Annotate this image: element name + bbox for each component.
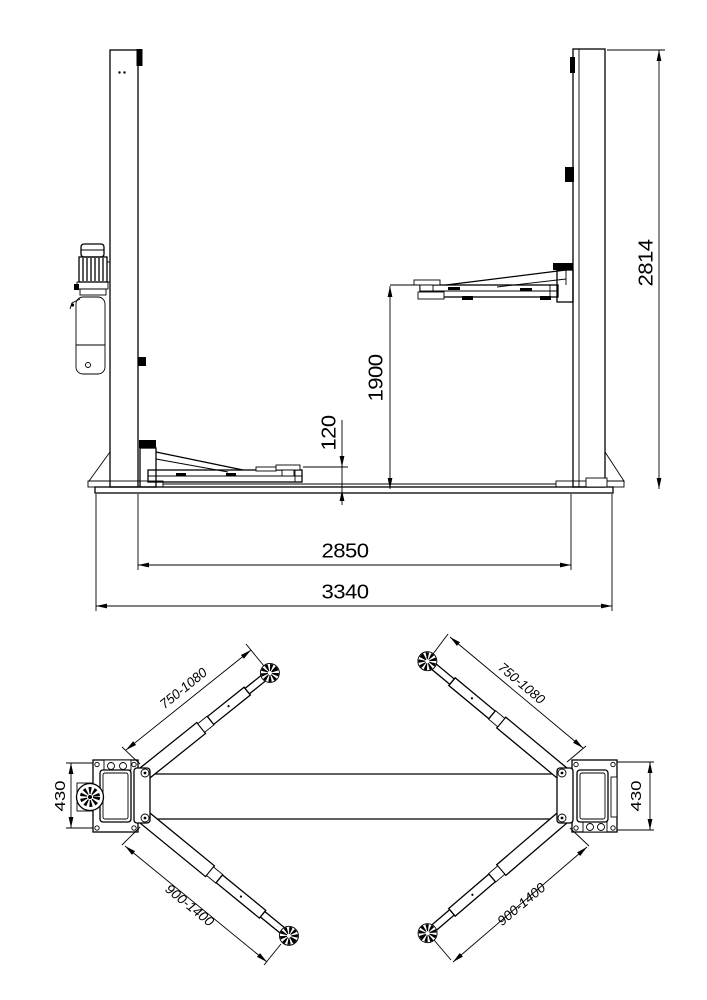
dim-column-clearance: 2850 [138, 494, 571, 570]
anchor-box [586, 478, 607, 487]
dim-label-overall-width: 3340 [322, 581, 369, 603]
dim-front-arm-left: 750-1080 [122, 644, 264, 764]
dim-label-plate-depth-right: 430 [628, 781, 645, 812]
plan-motor [77, 783, 104, 811]
dim-rear-arm-left: 900-1400 [122, 827, 281, 965]
dim-lift-height: 1900 [365, 285, 419, 489]
right-carriage-arm-raised [414, 263, 573, 302]
dim-label-plate-depth-left: 430 [52, 781, 69, 812]
plan-arm-rear-right [414, 811, 568, 947]
technical-drawing-two-post-lift: 2814 1900 120 2850 3340 [0, 0, 707, 1000]
lift-pad-side [276, 465, 300, 470]
dim-plate-depth-right: 430 [617, 762, 654, 830]
dim-rear-arm-right: 900-1400 [434, 828, 589, 962]
dim-label-overall-height: 2814 [635, 239, 657, 286]
front-elevation-view: 2814 1900 120 2850 3340 [70, 49, 665, 611]
plan-arm-front-right [414, 648, 568, 780]
dim-label-column-clearance: 2850 [322, 540, 369, 562]
right-latch-release [565, 167, 574, 182]
lift-pad-side [256, 467, 276, 471]
plan-arm-rear-left [139, 811, 302, 950]
base-frame [88, 452, 624, 493]
dim-label-rear-arm-left: 900-1400 [162, 881, 217, 929]
left-gusset [89, 452, 110, 481]
dim-pad-min-height: 120 [303, 415, 348, 505]
hydraulic-power-unit [70, 244, 110, 374]
left-carriage-arm-lowered [139, 440, 302, 487]
plan-left-base-plate [77, 760, 151, 832]
dim-label-pad-min-height: 120 [318, 415, 340, 450]
left-column [110, 49, 146, 487]
dim-front-arm-right: 750-1080 [433, 634, 586, 762]
oil-tank [76, 297, 105, 374]
dim-label-rear-arm-right: 900-1400 [494, 880, 548, 929]
plan-crossbeam [150, 774, 557, 819]
floor-plate [95, 487, 613, 493]
right-gusset [605, 452, 624, 481]
dim-label-front-arm-right: 750-1080 [495, 660, 548, 708]
lift-pad-side [414, 280, 440, 285]
plan-arm-front-left [139, 660, 283, 781]
dim-label-front-arm-left: 750-1080 [157, 665, 210, 712]
plan-right-base-plate [557, 760, 617, 832]
dim-label-lift-height: 1900 [365, 354, 387, 401]
dim-overall-height: 2814 [607, 50, 665, 489]
plan-view: 750-1080 750-1080 900-1400 900-1400 [52, 634, 654, 965]
drawing-sheet: 2814 1900 120 2850 3340 [0, 0, 707, 1000]
left-latch-release [138, 357, 146, 366]
